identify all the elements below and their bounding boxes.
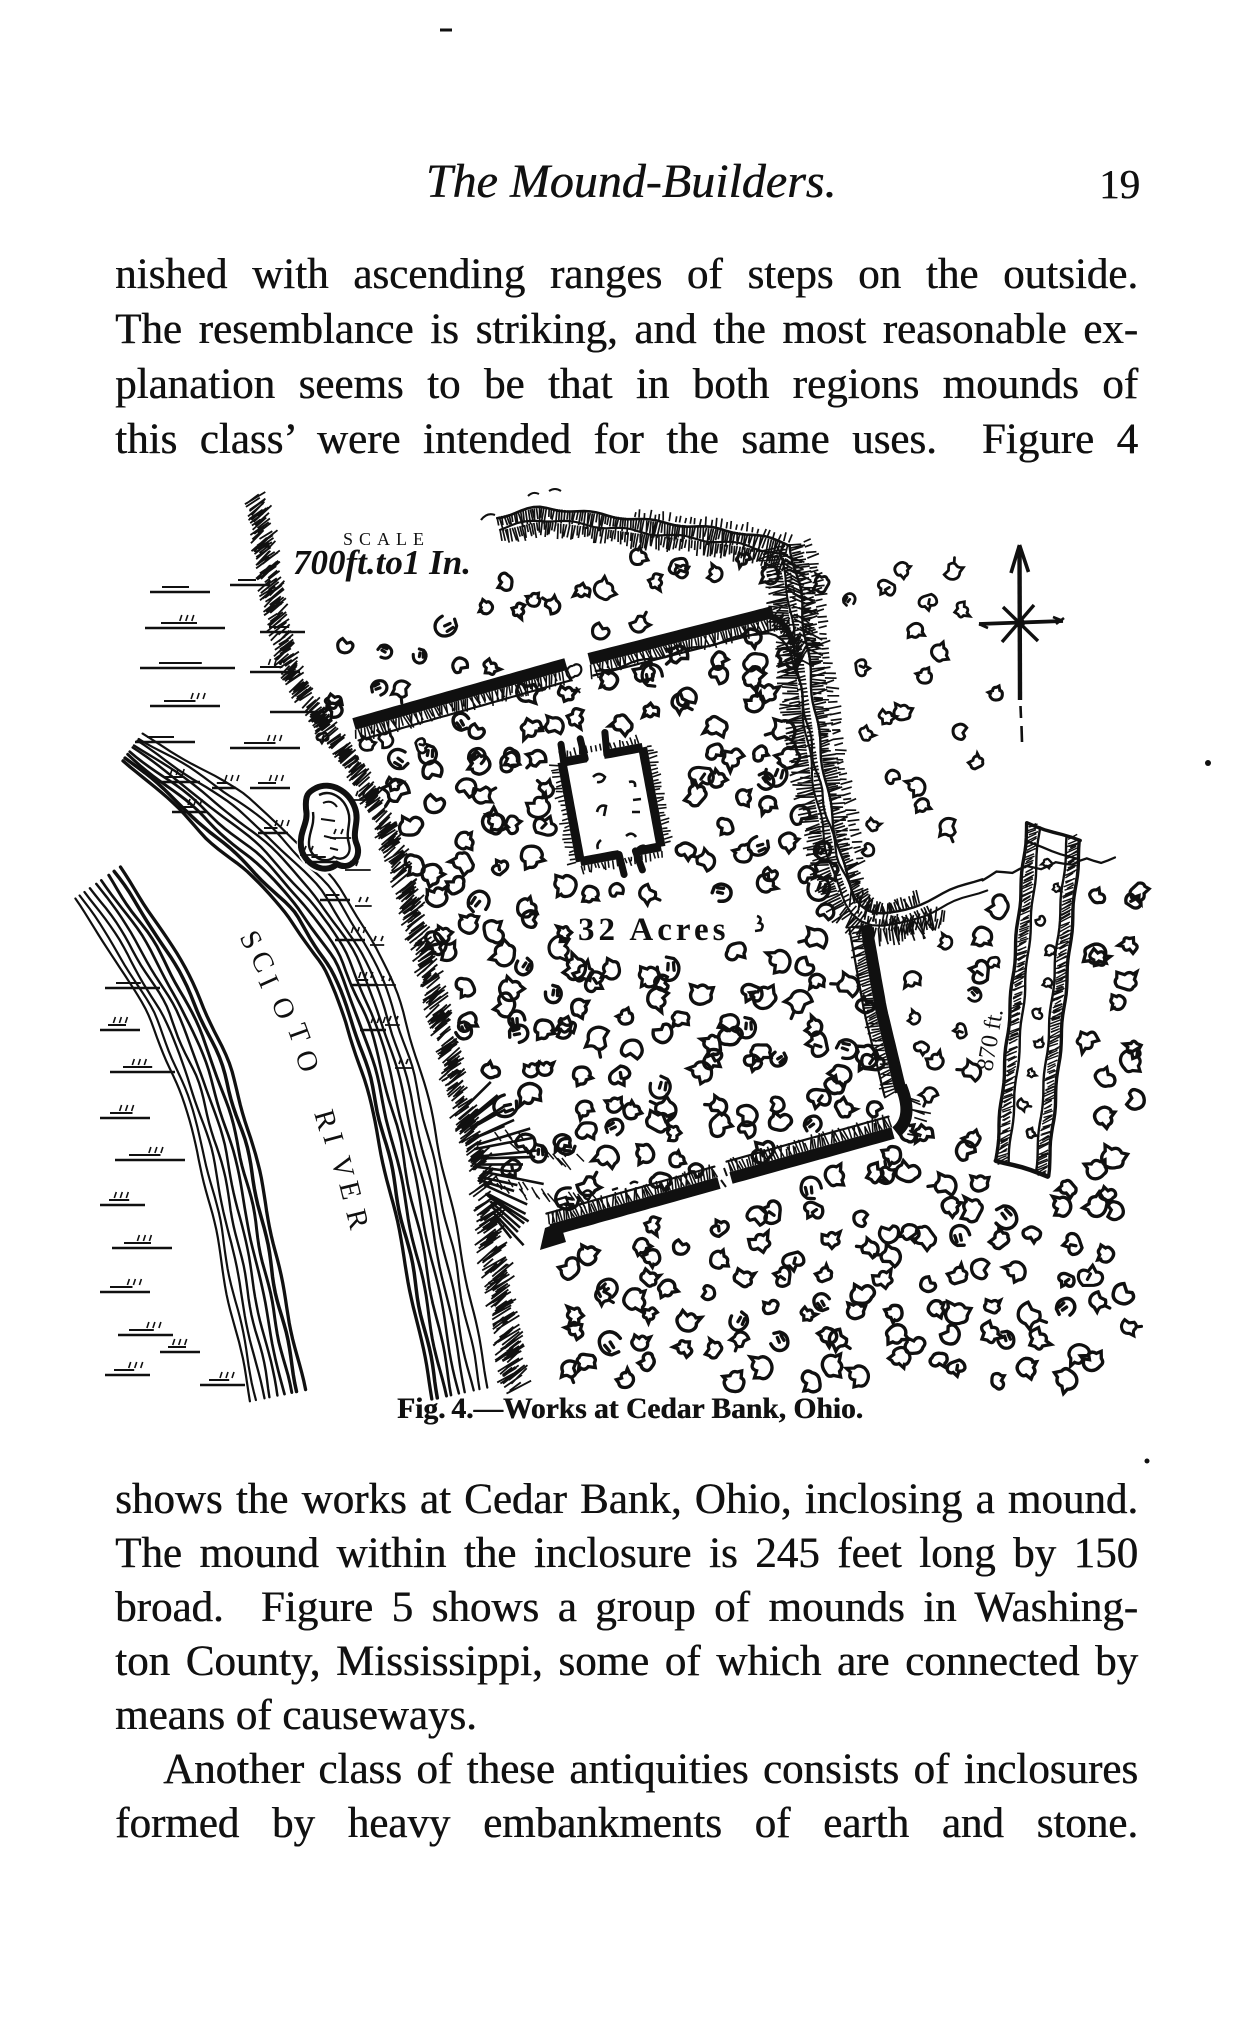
svg-text:R: R bbox=[339, 1206, 375, 1233]
svg-text:E: E bbox=[332, 1178, 367, 1203]
svg-text:700ft.to1 In.: 700ft.to1 In. bbox=[293, 543, 471, 582]
svg-text:V: V bbox=[324, 1153, 360, 1181]
svg-text:O: O bbox=[265, 993, 303, 1024]
svg-text:O: O bbox=[288, 1046, 325, 1076]
svg-text:I: I bbox=[316, 1130, 349, 1148]
svg-text:T: T bbox=[280, 1019, 316, 1047]
svg-text:32 Acres: 32 Acres bbox=[578, 912, 729, 948]
svg-text:R: R bbox=[307, 1106, 343, 1134]
